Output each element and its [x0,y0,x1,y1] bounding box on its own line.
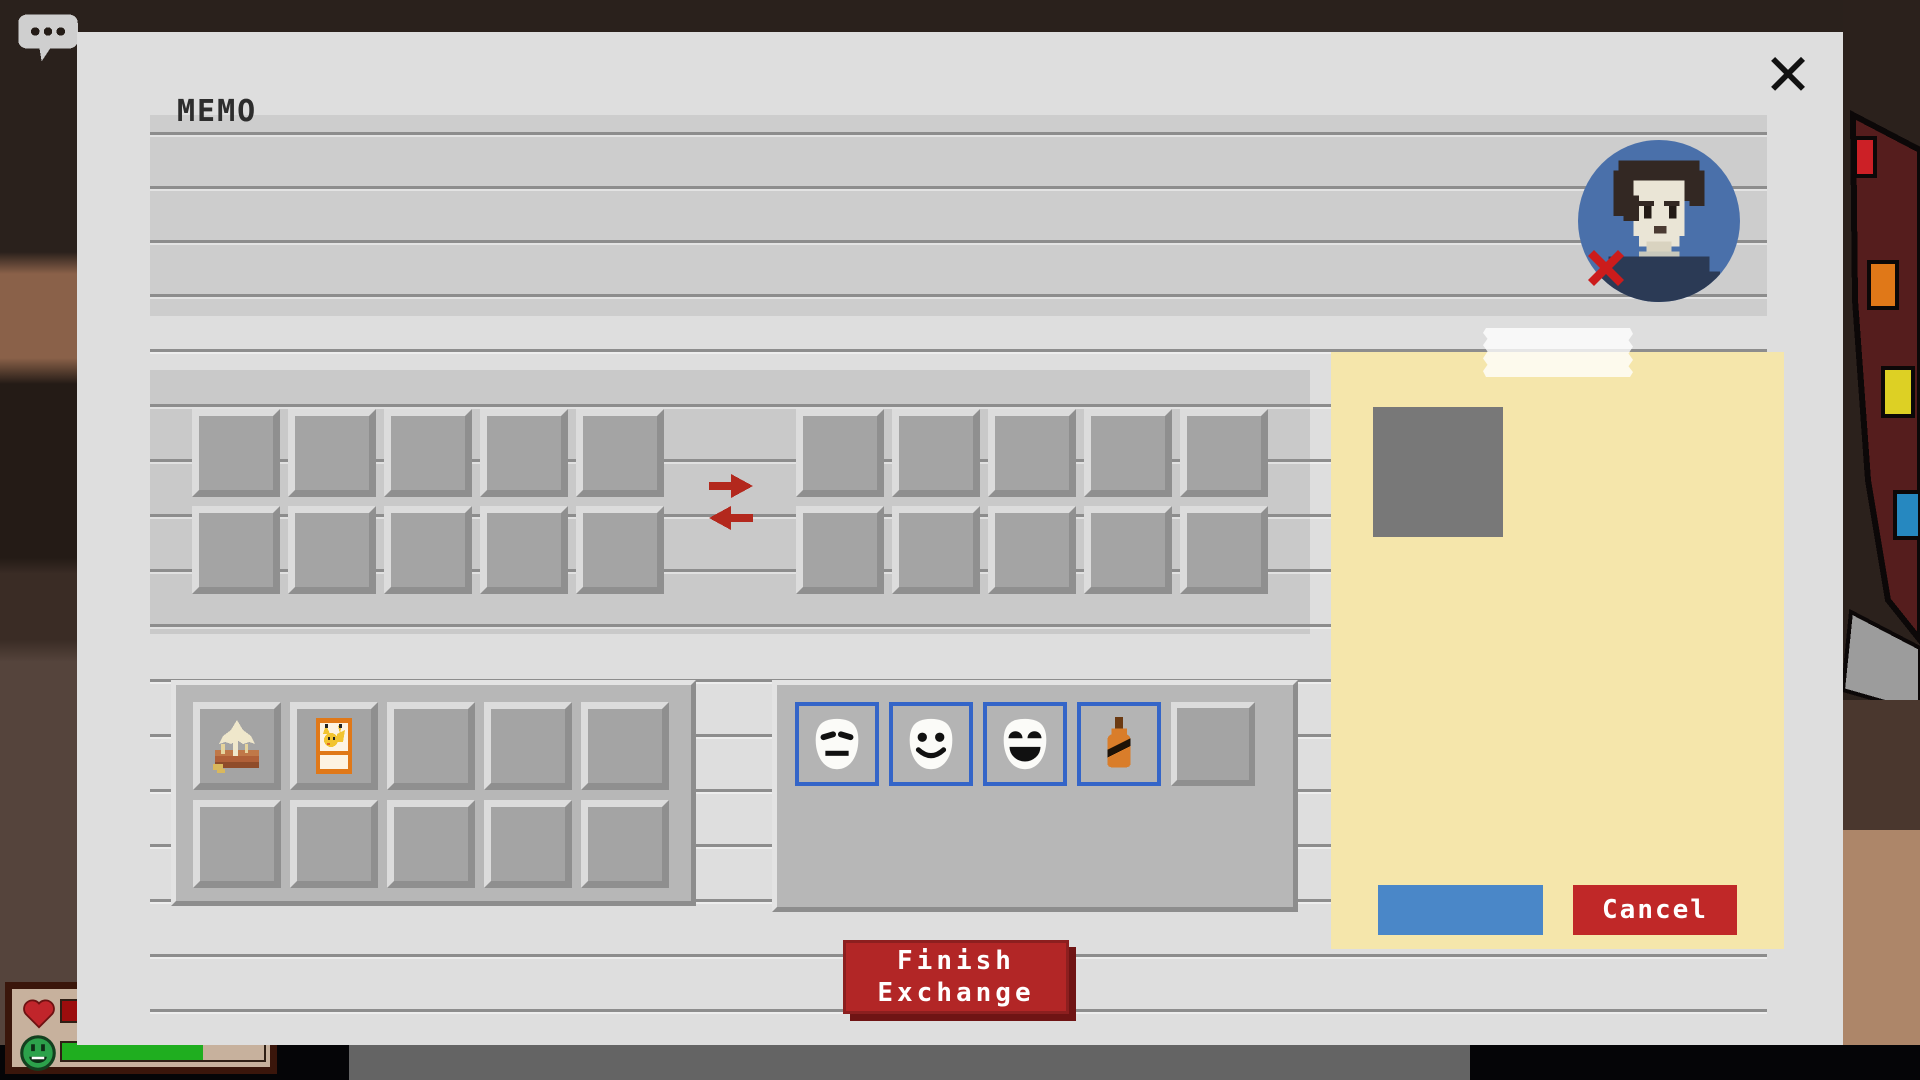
floor-gray [349,1045,1470,1080]
honey-toast-icon [205,714,269,778]
memo-title: MEMO [177,94,257,129]
close-icon[interactable]: ✕ [1753,40,1823,110]
emote-slot-laugh-mask[interactable] [983,702,1067,786]
inventory-slot[interactable] [193,702,281,790]
trade-slot[interactable] [288,409,376,497]
tape-strip [1483,328,1633,377]
room-wall-right [1843,0,1920,1045]
trade-slot[interactable] [480,506,568,594]
trade-slot[interactable] [192,506,280,594]
inventory-grid [193,702,669,888]
trade-slot[interactable] [384,506,472,594]
trade-slot[interactable] [892,506,980,594]
trade-slot[interactable] [384,409,472,497]
emote-slot-neutral-mask[interactable] [795,702,879,786]
memo-header-area [150,115,1767,316]
trade-slot[interactable] [796,506,884,594]
note-cancel-button[interactable]: Cancel [1573,885,1737,935]
floor-strip [0,1045,1920,1080]
inventory-slot[interactable] [581,702,669,790]
exchange-dialog: MEMO ✕ [77,32,1843,1045]
inventory-slot[interactable] [290,800,378,888]
sticky-note: Cancel [1331,352,1784,949]
finish-line2: Exchange [877,977,1034,1010]
inventory-slot[interactable] [387,702,475,790]
finish-exchange-button[interactable]: Finish Exchange [843,940,1069,1014]
trade-slot[interactable] [988,409,1076,497]
trade-slot[interactable] [988,506,1076,594]
trade-slot[interactable] [892,409,980,497]
inventory-slot[interactable] [193,800,281,888]
inventory-slot[interactable] [484,800,572,888]
emote-row [795,702,1255,786]
smiley-icon [18,1033,58,1073]
inventory-slot[interactable] [484,702,572,790]
red-x-status-icon [1582,244,1630,292]
mood-bar-fill [62,1043,203,1060]
exchange-arrows-icon [705,470,757,534]
trade-slot[interactable] [796,409,884,497]
inventory-slot[interactable] [387,800,475,888]
emote-slot-smile-mask[interactable] [889,702,973,786]
trade-slot[interactable] [288,506,376,594]
finish-line1: Finish [897,945,1015,978]
trade-slot[interactable] [1084,409,1172,497]
trade-slot[interactable] [1180,409,1268,497]
orange-marker-icon [1088,713,1150,775]
trade-slot[interactable] [192,409,280,497]
creature-card-icon [302,714,366,778]
trade-slot[interactable] [576,409,664,497]
trade-slot[interactable] [1084,506,1172,594]
laugh-mask-icon [994,713,1056,775]
offer-grid-left [192,409,664,594]
inventory-slot[interactable] [290,702,378,790]
inventory-slot[interactable] [581,800,669,888]
emote-slot-empty[interactable] [1171,702,1255,786]
trade-slot[interactable] [1180,506,1268,594]
chat-bubble-icon[interactable] [14,10,82,70]
heart-icon [20,995,58,1031]
note-image-placeholder [1373,407,1503,537]
game-screen: MEMO ✕ [0,0,1920,1080]
smile-mask-icon [900,713,962,775]
note-confirm-button[interactable] [1378,885,1543,935]
offer-grid-right [796,409,1268,594]
room-wall-left [0,0,77,1045]
dartboard-machine [1843,0,1920,1045]
neutral-mask-icon [806,713,868,775]
emote-slot-orange-marker[interactable] [1077,702,1161,786]
trade-slot[interactable] [576,506,664,594]
trade-slot[interactable] [480,409,568,497]
